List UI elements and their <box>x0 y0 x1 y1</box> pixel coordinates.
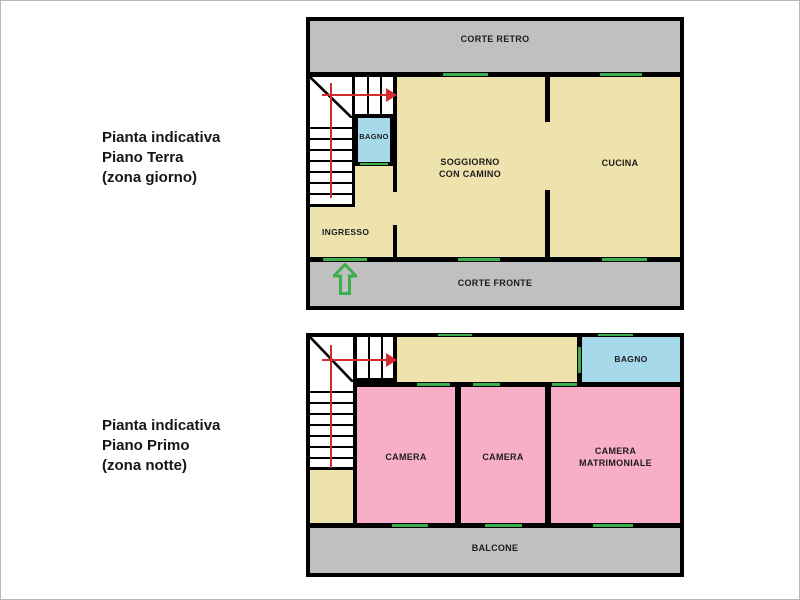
room-label: BAGNO <box>358 132 390 141</box>
window-marker <box>443 73 488 76</box>
wall <box>393 225 397 257</box>
door-marker <box>360 163 388 165</box>
room-bagno: BAGNO <box>355 118 393 162</box>
window-marker <box>593 524 633 527</box>
room-label: MATRIMONIALE <box>551 458 680 468</box>
stairs-arrow-shaft <box>322 359 386 361</box>
door-marker <box>417 383 450 386</box>
first-floor-plan: BAGNO CAMERA CAMERA CAMERA MATRIMONIALE … <box>306 333 684 577</box>
room-label: CAMERA <box>357 452 455 462</box>
room-label: CON CAMINO <box>420 169 520 179</box>
room-balcone: BALCONE <box>310 528 680 573</box>
room-label: CORTE RETRO <box>310 34 680 44</box>
window-marker <box>600 73 642 76</box>
caption-line: Pianta indicativa <box>102 416 282 436</box>
stairs-direction-line <box>330 345 332 468</box>
stairs-arrow-icon <box>386 353 397 367</box>
door-marker <box>552 383 577 386</box>
room-label: CAMERA <box>551 446 680 456</box>
window-marker <box>458 258 500 261</box>
door-marker <box>473 383 500 386</box>
window-marker <box>392 524 428 527</box>
door-marker <box>323 258 367 261</box>
caption-line: Pianta indicativa <box>102 128 282 148</box>
stairs-arrow-shaft <box>322 94 386 96</box>
window-marker <box>485 524 522 527</box>
ground-floor-caption: Pianta indicativa Piano Terra (zona gior… <box>102 128 282 188</box>
room-corte-fronte: CORTE FRONTE <box>310 262 680 306</box>
caption-line: (zona notte) <box>102 456 282 476</box>
wall <box>545 190 550 257</box>
stair-tread-line <box>368 337 370 378</box>
window-marker <box>598 334 633 336</box>
room-label: CORTE FRONTE <box>310 278 680 288</box>
entrance-arrow-icon <box>333 263 357 295</box>
stairs-arrow-icon <box>386 88 397 102</box>
caption-line: Piano Terra <box>102 148 282 168</box>
stair-tread-line <box>381 337 383 378</box>
stairs-treads <box>310 118 355 207</box>
caption-line: (zona giorno) <box>102 168 282 188</box>
door-marker <box>578 347 581 373</box>
window-marker <box>438 334 472 336</box>
room-label: CAMERA <box>461 452 545 462</box>
room-corte-retro: CORTE RETRO <box>310 21 680 72</box>
room-bagno-first: BAGNO <box>582 337 680 382</box>
caption-line: Piano Primo <box>102 436 282 456</box>
wall <box>545 77 550 122</box>
ground-floor-plan: CORTE RETRO BAGNO INGRESSO SOGGIORNO CON… <box>306 17 684 310</box>
wall <box>353 382 680 387</box>
window-marker <box>602 258 647 261</box>
room-label: BAGNO <box>582 354 680 364</box>
room-label: CUCINA <box>580 158 660 168</box>
room-label: INGRESSO <box>322 227 369 237</box>
first-floor-caption: Pianta indicativa Piano Primo (zona nott… <box>102 416 282 476</box>
room-label: BALCONE <box>310 543 680 553</box>
room-label: SOGGIORNO <box>420 157 520 167</box>
stairs-direction-line <box>330 83 332 198</box>
stairs-upper-flight <box>310 77 355 118</box>
